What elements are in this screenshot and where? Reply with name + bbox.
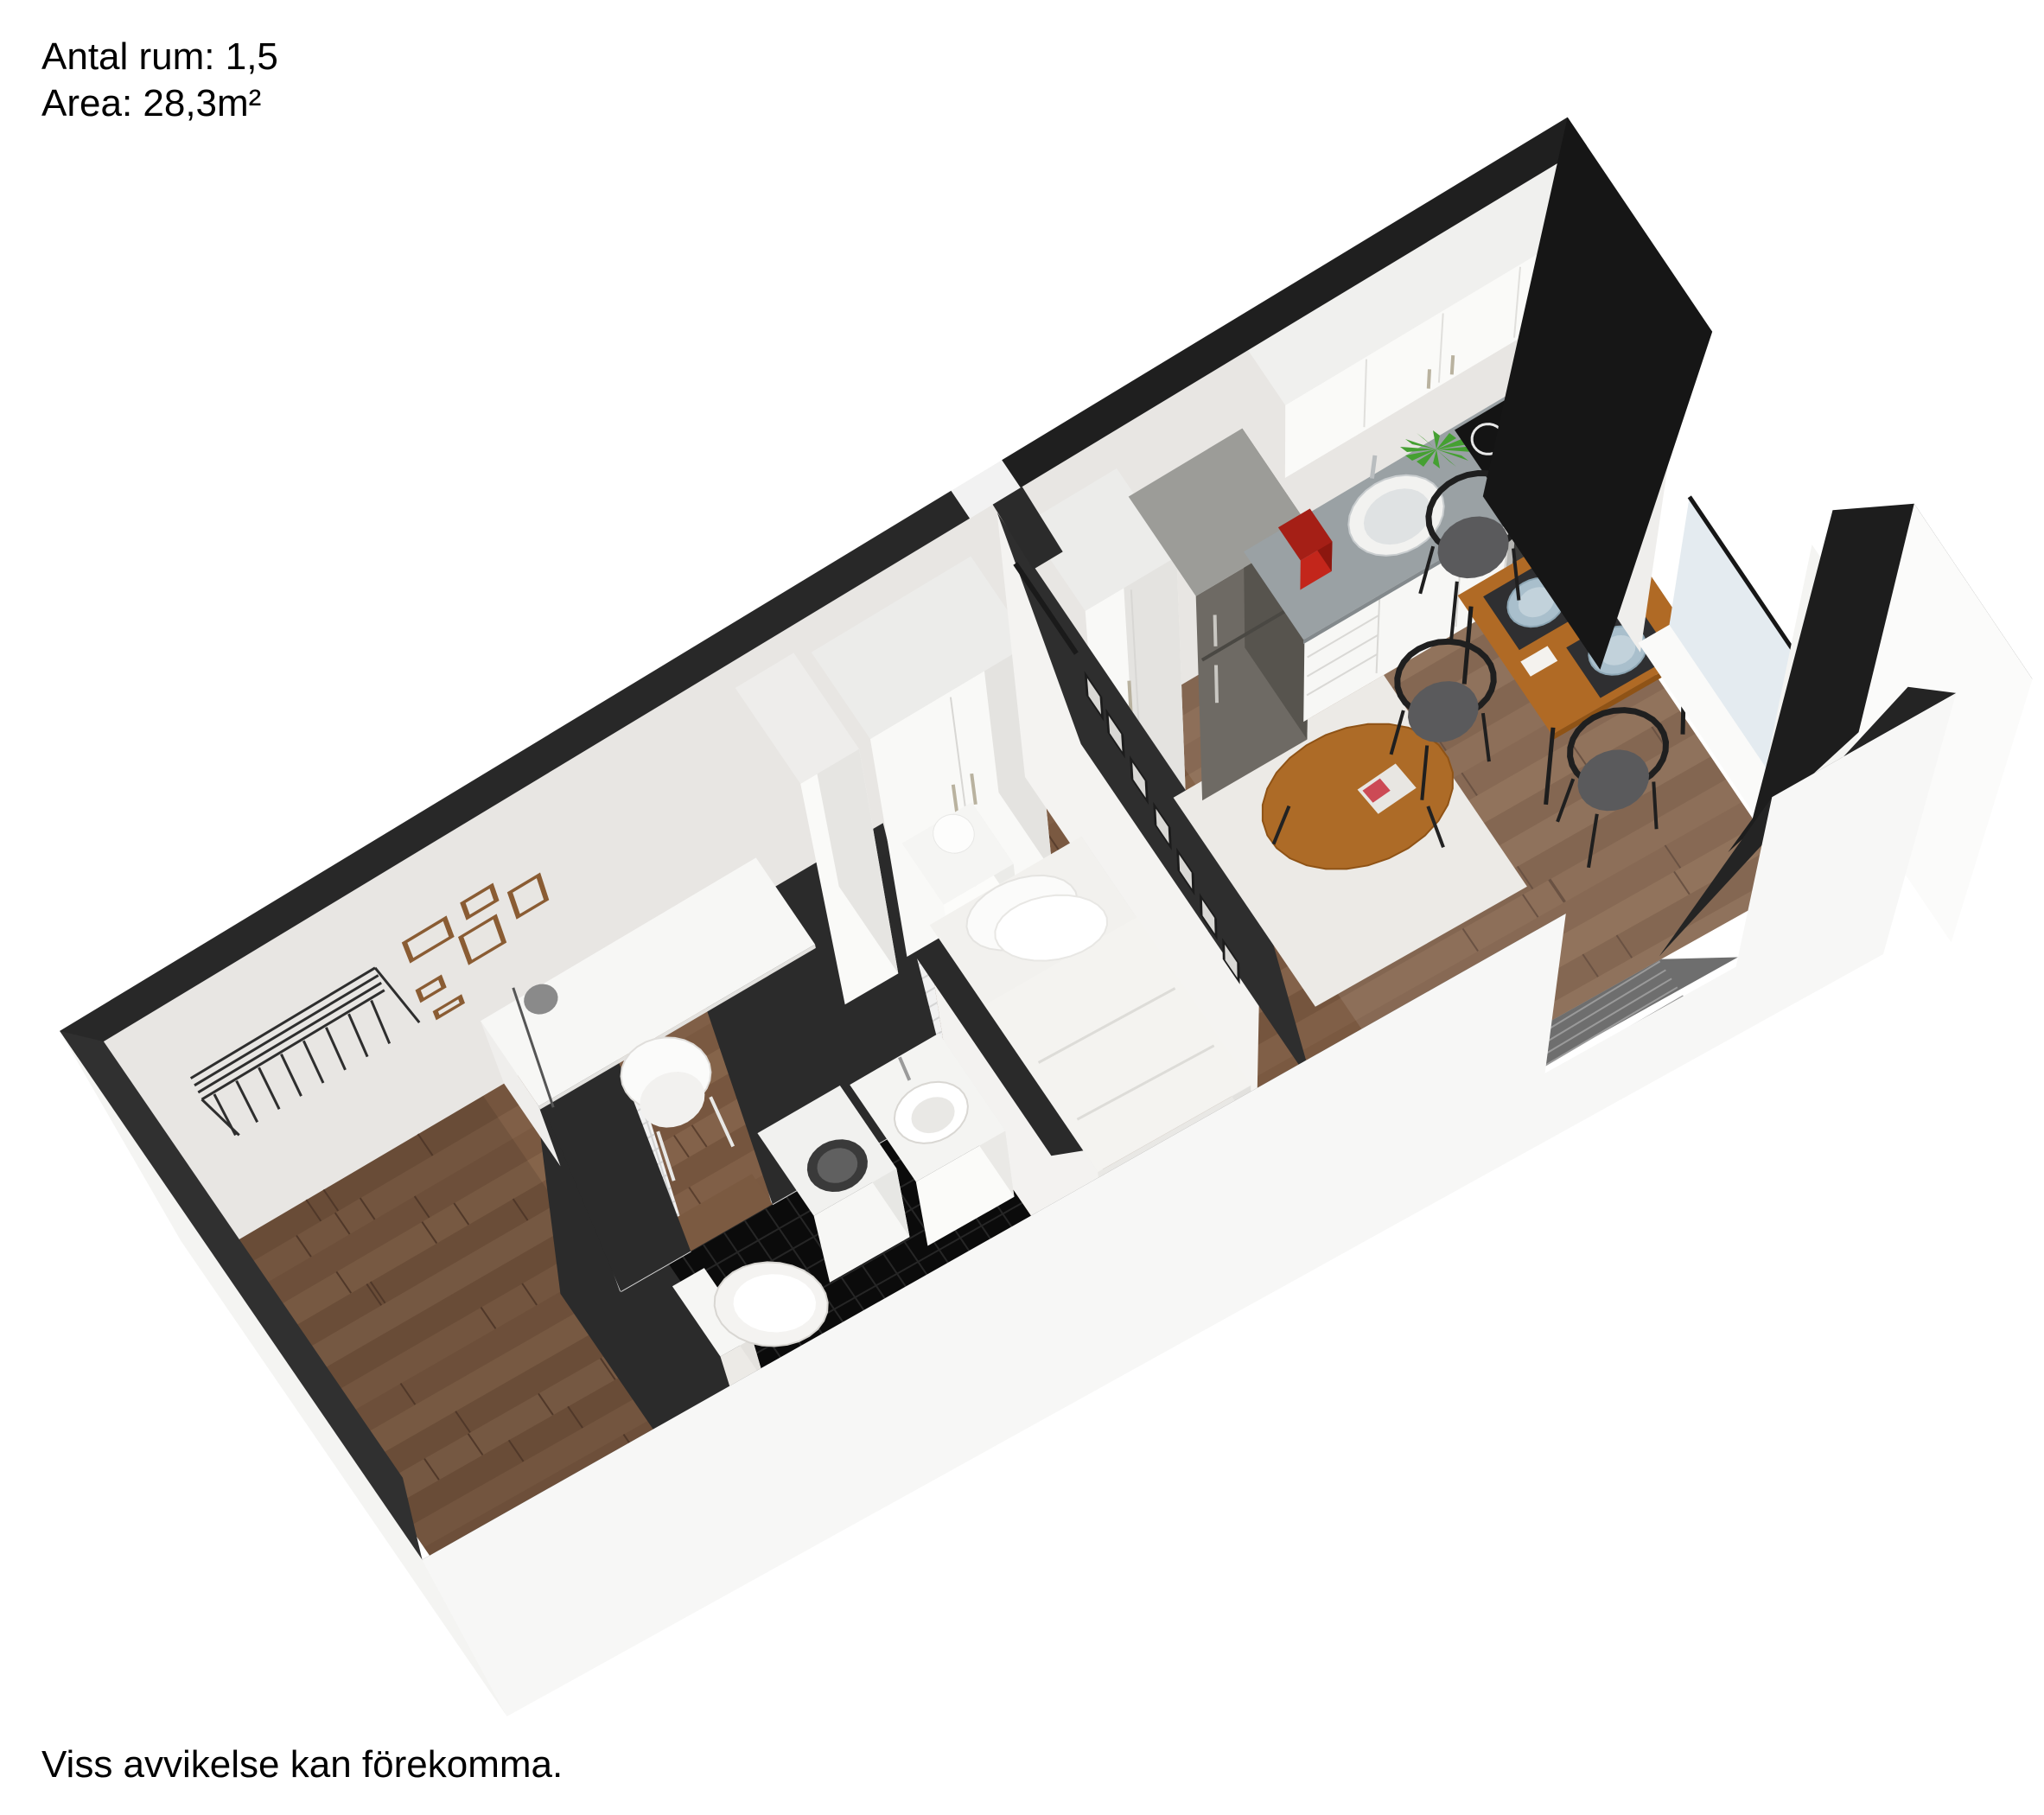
svg-text:Antal rum: 1,5: Antal rum: 1,5 (41, 35, 278, 78)
svg-text:Area: 28,3m²: Area: 28,3m² (41, 82, 261, 124)
svg-text:Viss avvikelse kan förekomma.: Viss avvikelse kan förekomma. (41, 1743, 563, 1786)
